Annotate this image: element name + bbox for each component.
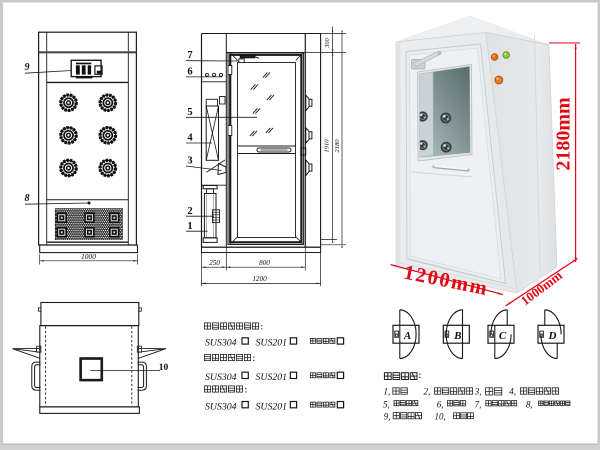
svg-text:800: 800 [259,259,270,267]
svg-text:1: 1 [187,221,192,232]
svg-text:4: 4 [187,133,193,144]
svg-text:9,: 9, [384,411,391,421]
svg-text:B: B [395,333,398,338]
svg-text:SUS201: SUS201 [256,372,288,383]
svg-text:7: 7 [187,50,192,61]
svg-text:1200: 1200 [252,275,267,283]
svg-text:5,: 5, [383,399,390,409]
svg-text:6,: 6, [437,399,444,409]
svg-text:SUS304: SUS304 [205,372,237,383]
svg-text:250: 250 [209,259,220,267]
svg-text::: : [419,370,422,380]
svg-text:A: A [403,330,411,342]
svg-text:SUS201: SUS201 [256,401,288,412]
svg-text:8,: 8, [526,399,533,409]
svg-text:10: 10 [159,363,169,373]
svg-text::: : [261,323,264,332]
svg-text:6: 6 [187,67,192,78]
svg-text:2180mm: 2180mm [553,97,575,171]
svg-text:300: 300 [324,37,331,48]
svg-text:SUS304: SUS304 [205,401,237,412]
svg-text:1910: 1910 [324,139,331,153]
svg-text:2: 2 [187,206,192,217]
svg-text:SUS304: SUS304 [205,338,237,349]
svg-text:3,: 3, [474,387,482,397]
svg-text::: : [253,354,256,363]
svg-text:5: 5 [187,107,192,118]
svg-text:3: 3 [187,156,192,167]
svg-text:9: 9 [25,62,30,73]
svg-text:10,: 10, [435,411,446,421]
svg-text:C: C [499,330,507,342]
svg-text:2180: 2180 [334,139,341,153]
svg-text:B: B [453,330,461,342]
svg-text:1,: 1, [384,387,391,397]
svg-text:SUS201: SUS201 [256,338,288,349]
svg-text:4,: 4, [509,387,516,397]
svg-text:7,: 7, [475,399,482,409]
svg-text:2,: 2, [424,387,431,397]
svg-text:1000: 1000 [81,252,96,261]
svg-text:D: D [548,330,557,342]
svg-text:8: 8 [25,193,30,204]
svg-text::: : [245,386,248,395]
